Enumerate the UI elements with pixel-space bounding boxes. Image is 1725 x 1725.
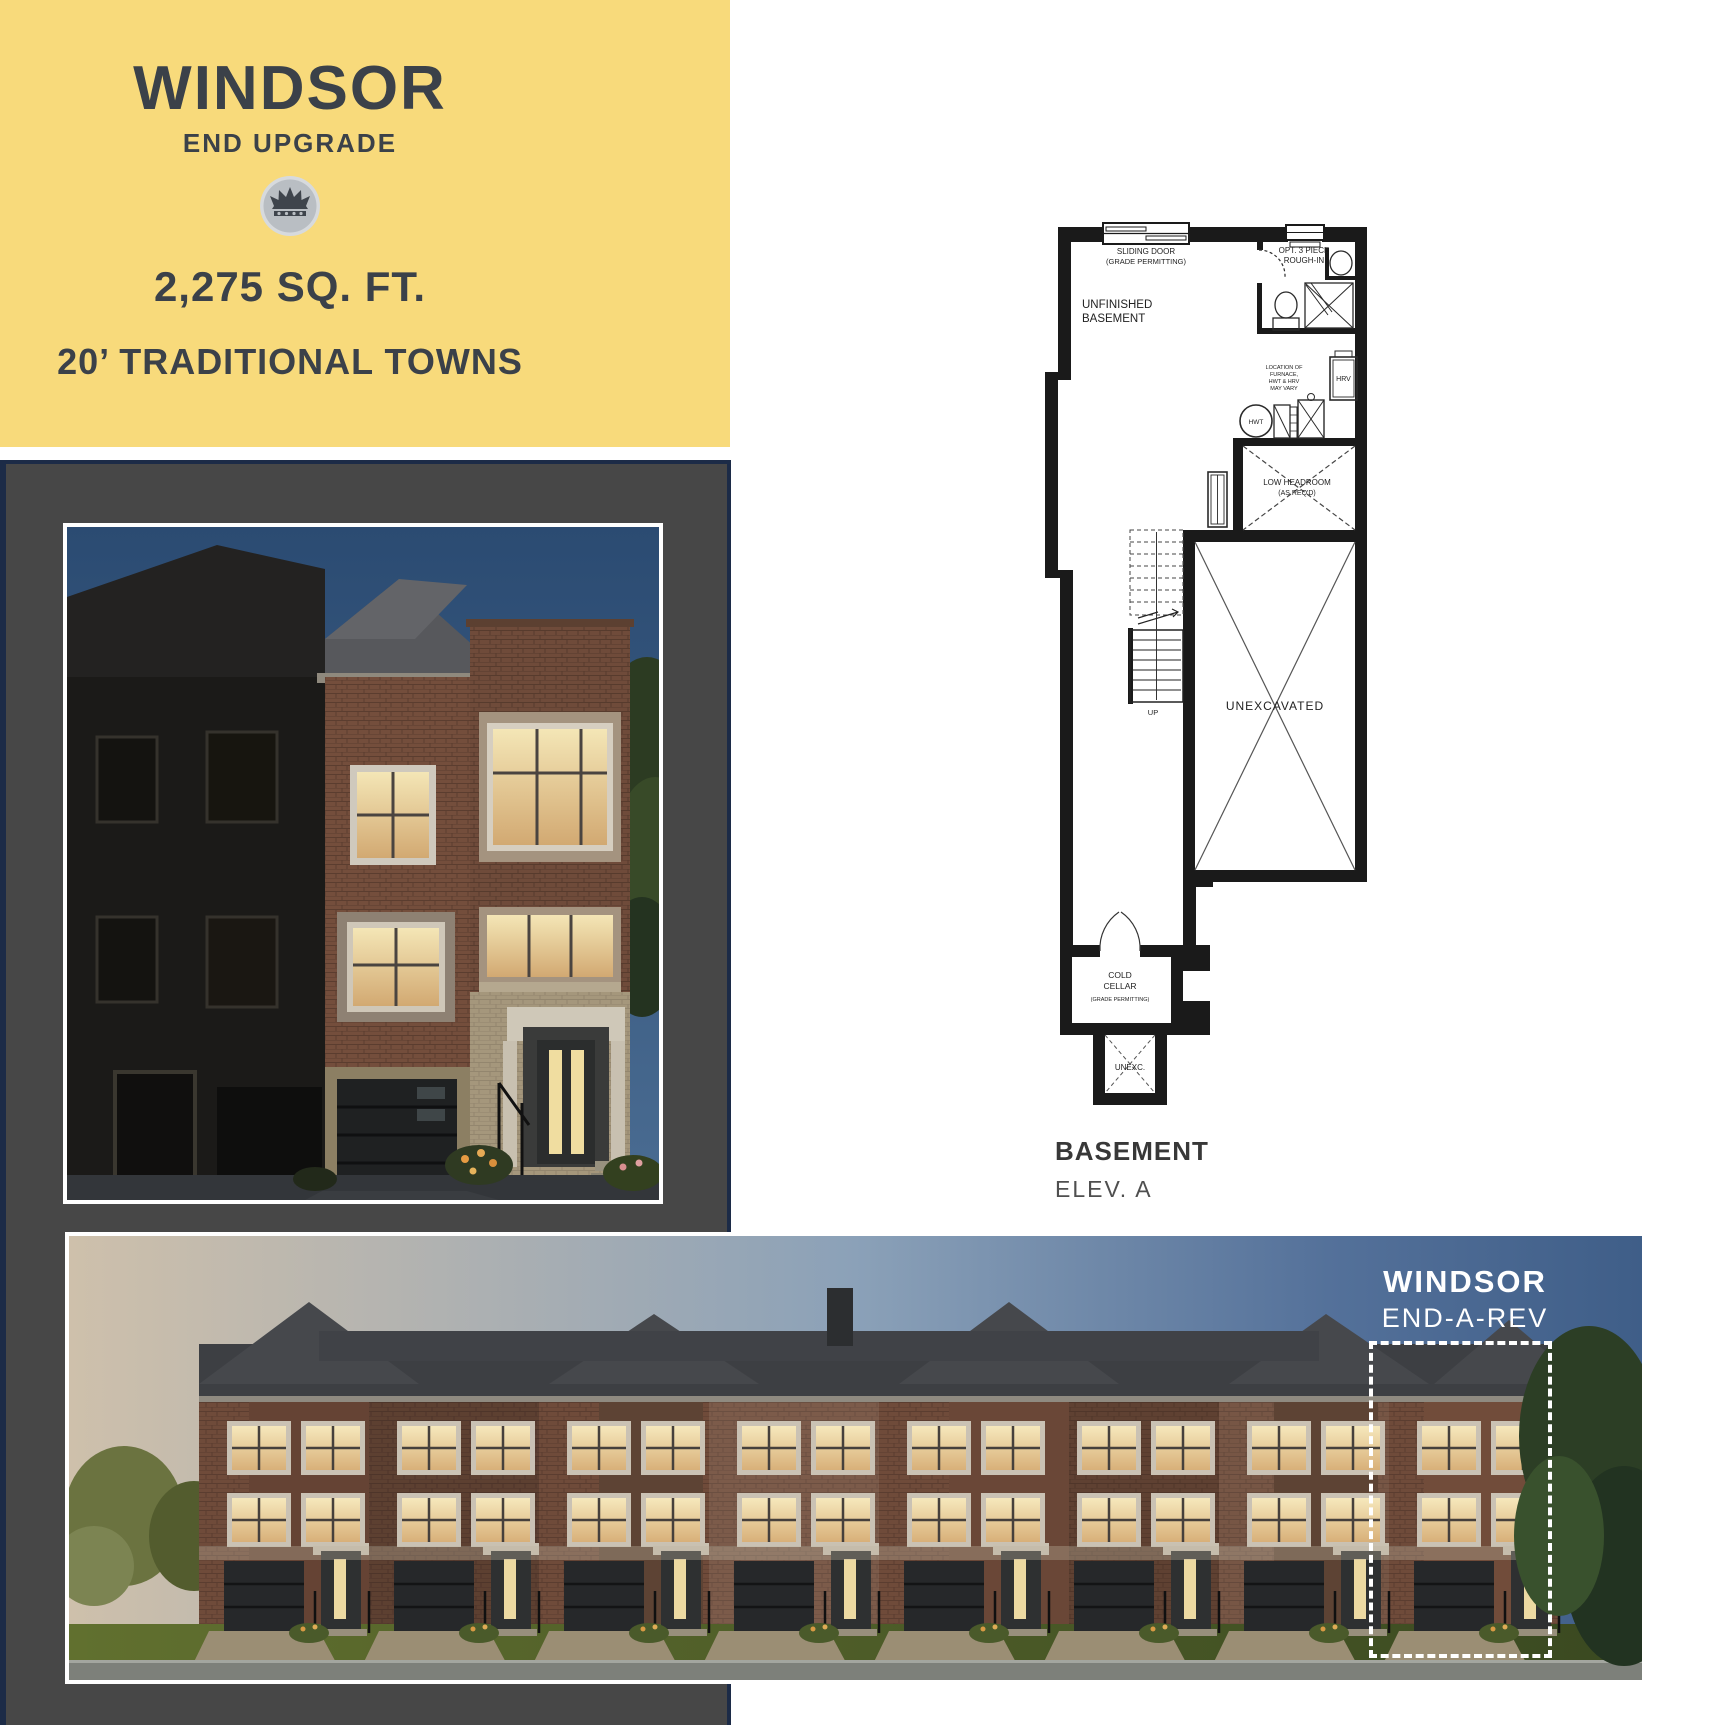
streetscape-label: WINDSOR END-A-REV <box>1375 1264 1555 1334</box>
hwt-label: HWT <box>1249 419 1264 426</box>
furnace-note3: HWT & HRV <box>1269 379 1300 385</box>
roughin-label: OPT. 3 PIECE <box>1279 246 1330 255</box>
unexcavated-label: UNEXCAVATED <box>1226 699 1324 713</box>
crown-icon <box>259 175 321 237</box>
cold-cellar-label: COLD <box>1108 970 1132 980</box>
low-headroom-label: LOW HEADROOM <box>1263 478 1331 487</box>
plan-subtitle: END UPGRADE <box>0 128 580 159</box>
plan-title: WINDSOR <box>0 58 580 120</box>
dark-unit <box>67 545 325 1200</box>
sliding-door-label2: (GRADE PERMITTING) <box>1106 257 1187 266</box>
end-unit-highlight <box>1369 1341 1552 1658</box>
furnace-note: LOCATION OF <box>1266 365 1304 371</box>
road <box>69 1660 1642 1680</box>
plan-caption-elevation: ELEV. A <box>1055 1176 1209 1203</box>
stairs <box>1130 530 1183 702</box>
streetscape-model-name: WINDSOR <box>1375 1264 1555 1300</box>
plan-walls <box>1045 227 1367 1105</box>
streetscape-frame: WINDSOR END-A-REV <box>65 1232 1646 1684</box>
builder-badge <box>259 175 321 237</box>
series-name: 20’ TRADITIONAL TOWNS <box>0 341 580 383</box>
banner-content: WINDSOR END UPGRADE 2,275 SQ. FT. 20’ TR… <box>0 0 580 383</box>
window-symbol <box>1286 225 1324 247</box>
plan-caption: BASEMENT ELEV. A <box>1055 1136 1209 1203</box>
up-label: UP <box>1148 708 1158 717</box>
furnace-note2: FURNACE, <box>1270 372 1299 378</box>
furnace-note4: MAY VARY <box>1270 386 1298 392</box>
low-headroom-label2: (AS REQ'D) <box>1278 490 1316 497</box>
basement-floorplan: SLIDING DOOR (GRADE PERMITTING) OPT. 3 P… <box>1040 220 1370 1120</box>
hrv-label: HRV <box>1336 376 1351 383</box>
unfinished-basement-label: UNFINISHED <box>1082 299 1152 311</box>
elevation-photo <box>67 527 659 1200</box>
cold-cellar-door <box>1100 912 1140 951</box>
plan-caption-title: BASEMENT <box>1055 1136 1209 1167</box>
roughin-label2: ROUGH-IN <box>1284 256 1325 265</box>
tower-cap <box>466 619 634 627</box>
unfinished-basement-label2: BASEMENT <box>1082 313 1145 325</box>
brochure-page: WINDSOR END UPGRADE 2,275 SQ. FT. 20’ TR… <box>0 0 1725 1725</box>
cold-cellar-label2: CELLAR <box>1103 981 1136 991</box>
elevation-photo-frame <box>63 523 663 1204</box>
sliding-door-symbol <box>1103 223 1189 244</box>
plan-banner: WINDSOR END UPGRADE 2,275 SQ. FT. 20’ TR… <box>0 0 730 447</box>
streetscape-elevation-code: END-A-REV <box>1375 1303 1555 1334</box>
unexc-label: UNEXC. <box>1115 1063 1145 1072</box>
sliding-door-label: SLIDING DOOR <box>1117 247 1175 256</box>
cold-cellar-label3: (GRADE PERMITTING) <box>1091 997 1150 1003</box>
stone-band <box>199 1546 1559 1560</box>
square-footage: 2,275 SQ. FT. <box>0 263 580 311</box>
low-headroom-area <box>1243 446 1355 530</box>
